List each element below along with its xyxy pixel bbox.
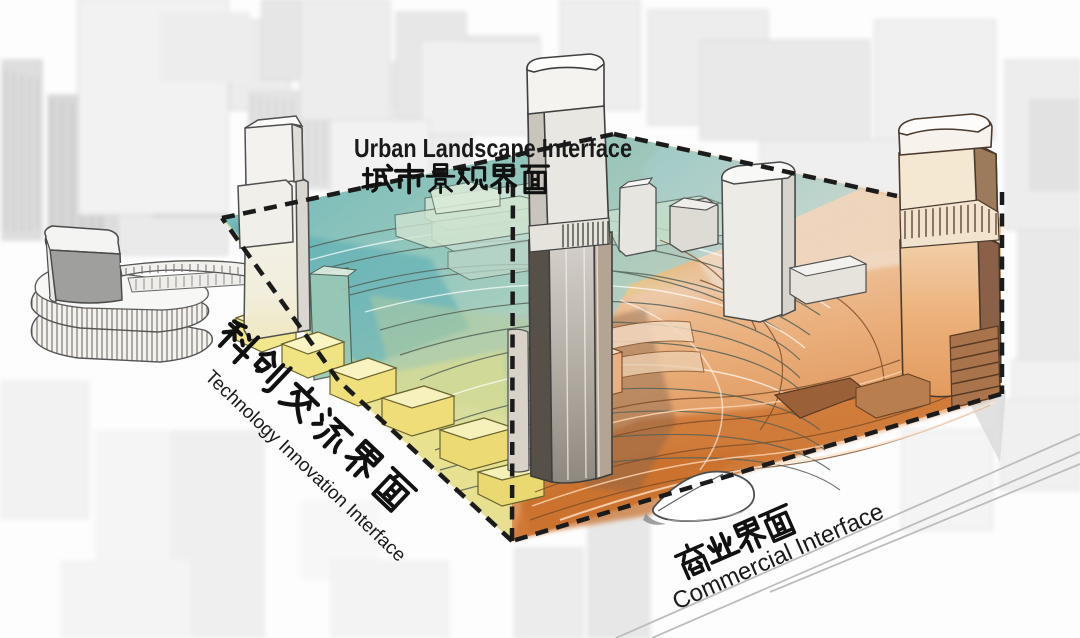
svg-text:Urban Landscape Interface: Urban Landscape Interface — [354, 133, 632, 163]
